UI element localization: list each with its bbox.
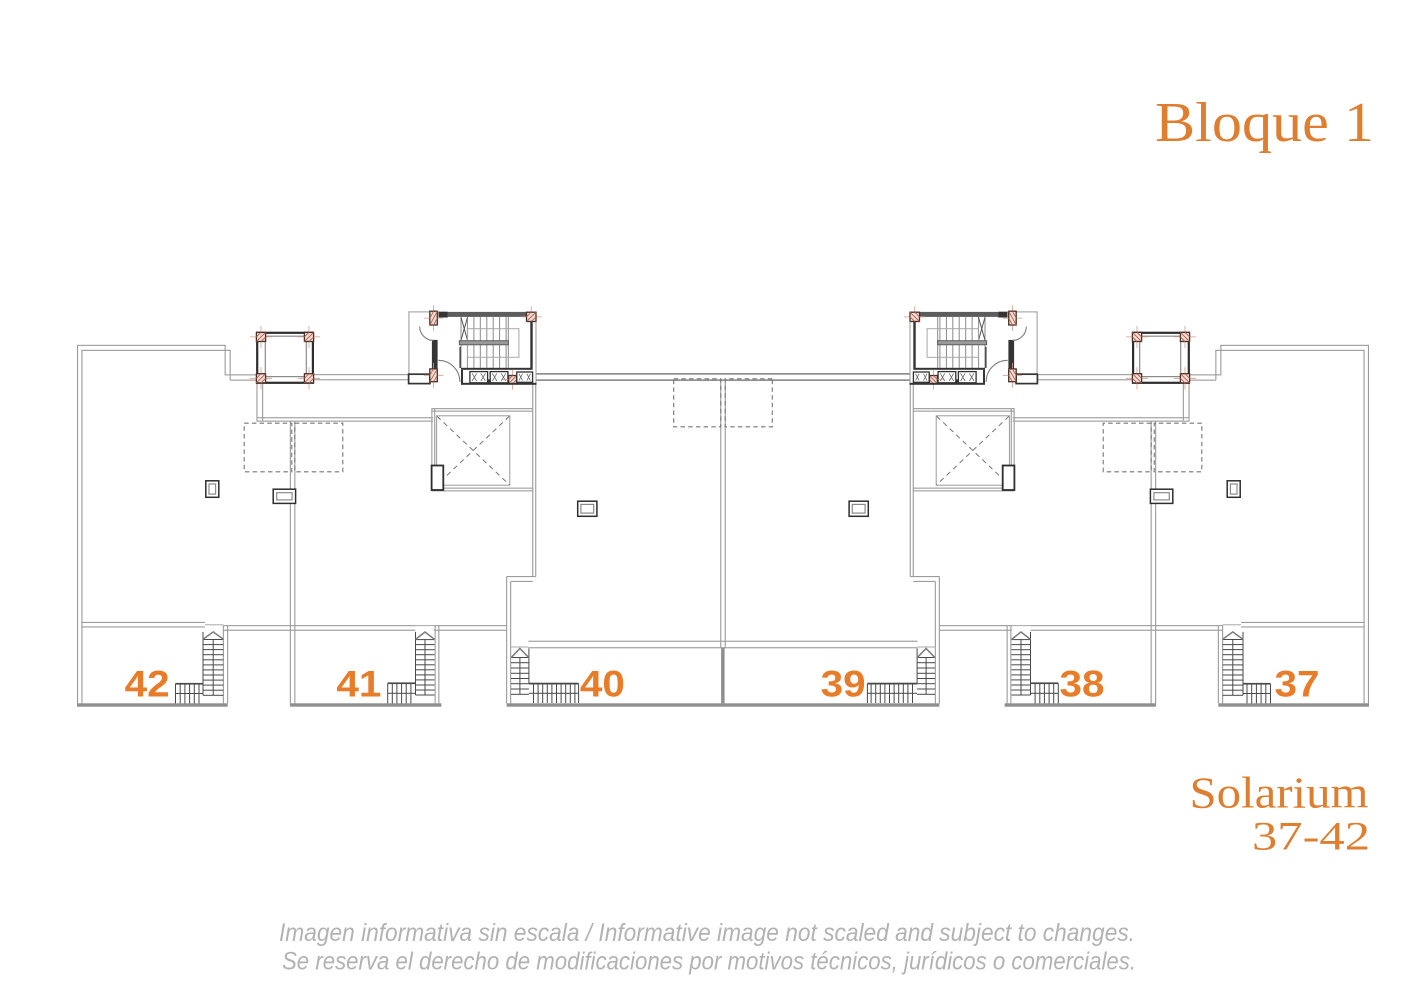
svg-text:42: 42: [125, 664, 170, 705]
svg-text:Imagen informativa sin escala: Imagen informativa sin escala / Informat…: [279, 919, 1135, 947]
svg-text:38: 38: [1060, 664, 1105, 705]
svg-text:37: 37: [1275, 664, 1320, 705]
svg-text:Solarium: Solarium: [1190, 768, 1369, 818]
svg-text:39: 39: [821, 664, 866, 705]
svg-text:Bloque 1: Bloque 1: [1155, 92, 1374, 154]
svg-text:41: 41: [336, 664, 381, 705]
svg-text:37-42: 37-42: [1252, 813, 1370, 858]
svg-text:40: 40: [580, 664, 625, 705]
svg-text:Se reserva el derecho de modif: Se reserva el derecho de modificaciones …: [282, 948, 1136, 976]
